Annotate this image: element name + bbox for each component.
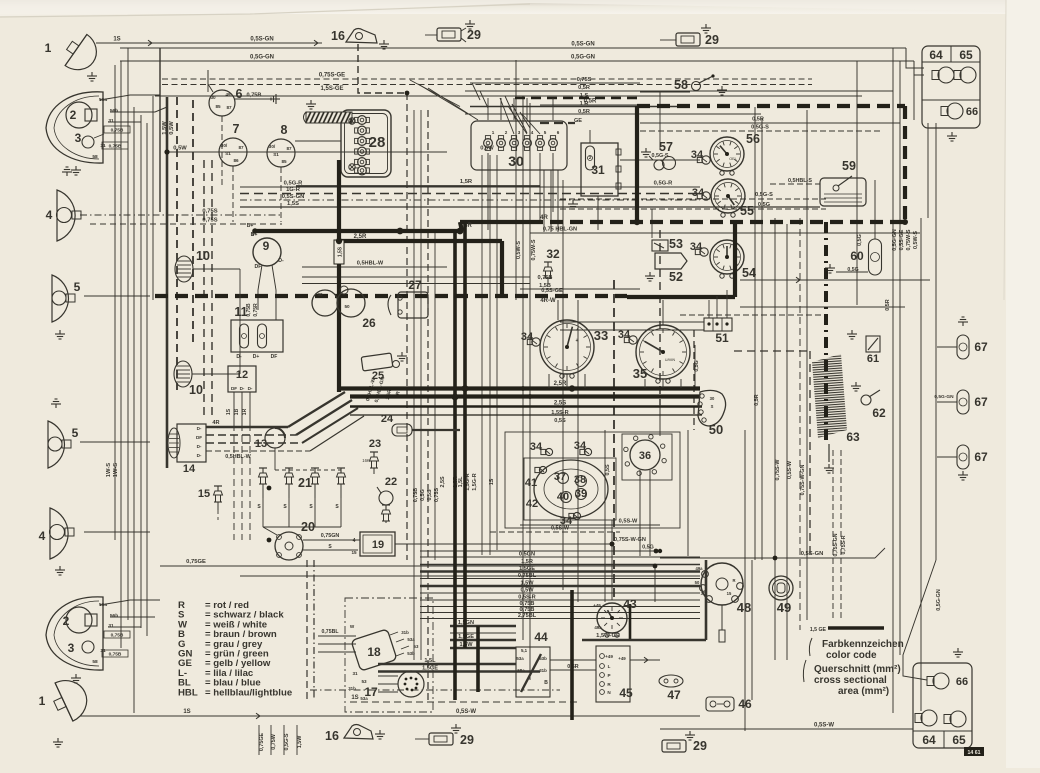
svg-text:0,75GE: 0,75GE (186, 559, 206, 565)
svg-text:12: 12 (236, 369, 248, 381)
svg-text:0,75B: 0,75B (111, 633, 124, 639)
svg-text:2: 2 (589, 155, 592, 160)
svg-text:87: 87 (286, 146, 292, 151)
svg-text:10: 10 (189, 383, 203, 397)
svg-text:35: 35 (633, 366, 647, 381)
svg-text:54: 54 (742, 266, 756, 280)
svg-text:50: 50 (695, 580, 700, 585)
svg-text:1,5S: 1,5S (287, 201, 299, 207)
svg-text:0,5G-GN: 0,5G-GN (934, 394, 954, 400)
svg-text:0,75B: 0,75B (413, 488, 419, 502)
svg-text:+49: +49 (593, 603, 601, 608)
svg-text:29: 29 (705, 33, 719, 47)
svg-text:1B: 1B (234, 408, 240, 415)
svg-text:0,75S: 0,75S (577, 77, 592, 83)
svg-text:0,5G-GN: 0,5G-GN (936, 589, 942, 611)
svg-text:30: 30 (508, 153, 524, 169)
svg-text:0,5G-GN: 0,5G-GN (571, 55, 595, 61)
svg-text:0,75S-R: 0,75S-R (841, 535, 847, 554)
svg-text:87: 87 (238, 145, 244, 150)
svg-text:2: 2 (63, 614, 70, 628)
svg-text:0,5W: 0,5W (520, 588, 534, 594)
svg-text:0,5GN: 0,5GN (519, 552, 535, 558)
svg-text:1S: 1S (489, 478, 495, 485)
svg-text:1,5L: 1,5L (424, 658, 436, 664)
svg-text:53b: 53b (539, 656, 547, 661)
svg-text:29: 29 (467, 28, 481, 42)
svg-text:10: 10 (196, 249, 210, 263)
svg-text:0,5S-GN: 0,5S-GN (571, 42, 594, 48)
svg-text:0,75S: 0,75S (202, 209, 217, 215)
svg-text:53: 53 (669, 237, 683, 251)
svg-text:66: 66 (956, 676, 968, 688)
svg-text:40: 40 (557, 491, 569, 503)
svg-text:4R: 4R (212, 420, 219, 426)
svg-text:0,5R: 0,5R (885, 299, 891, 310)
svg-text:P: P (607, 673, 610, 678)
svg-text:0,75S: 0,75S (434, 488, 440, 502)
svg-text:56b: 56b (110, 613, 118, 619)
svg-text:2,75BL: 2,75BL (518, 613, 537, 619)
svg-text:0,75B: 0,75B (109, 652, 122, 658)
svg-text:0,75S-W-GN: 0,75S-W-GN (800, 465, 806, 496)
svg-text:D-: D- (240, 386, 245, 391)
svg-text:33: 33 (594, 328, 608, 343)
svg-text:1,5 GE: 1,5 GE (810, 627, 827, 633)
svg-text:60: 60 (850, 249, 864, 263)
svg-text:0,5S-W: 0,5S-W (787, 460, 793, 479)
svg-text:0,5W: 0,5W (173, 146, 187, 152)
svg-text:S1: S1 (225, 151, 231, 156)
svg-text:0,75W: 0,75W (271, 733, 277, 749)
svg-text:30: 30 (701, 591, 706, 596)
svg-text:cross sectional: cross sectional (814, 675, 887, 686)
svg-text:W: W (350, 624, 355, 629)
svg-text:U/MIN: U/MIN (665, 358, 676, 362)
svg-text:29: 29 (460, 733, 474, 747)
svg-text:8: 8 (281, 123, 288, 137)
svg-text:66: 66 (966, 106, 978, 118)
svg-text:4: 4 (46, 208, 53, 222)
svg-text:0,5HBL-S: 0,5HBL-S (788, 178, 812, 184)
svg-text:30: 30 (210, 95, 216, 100)
svg-text:64: 64 (922, 733, 936, 747)
svg-text:0,5S-GN: 0,5S-GN (282, 194, 305, 200)
svg-text:color code: color code (826, 650, 877, 661)
svg-text:6: 6 (557, 130, 560, 135)
svg-text:OEL: OEL (729, 157, 737, 161)
svg-text:36: 36 (639, 450, 651, 462)
svg-text:1,5G-R: 1,5G-R (472, 473, 478, 490)
svg-text:67: 67 (974, 395, 988, 409)
svg-text:1S: 1S (183, 709, 190, 715)
svg-text:S: S (711, 404, 714, 409)
svg-text:0,75GE: 0,75GE (259, 732, 265, 751)
svg-text:0,5G: 0,5G (758, 202, 770, 208)
svg-text:34: 34 (692, 187, 705, 199)
svg-text:34: 34 (530, 441, 543, 453)
svg-text:5: 5 (544, 130, 547, 135)
svg-text:0,75B: 0,75B (246, 303, 252, 317)
svg-text:7: 7 (233, 122, 240, 136)
svg-text:0,5R: 0,5R (752, 117, 764, 123)
svg-text:GE: GE (574, 118, 582, 124)
svg-text:0,5G-S: 0,5G-S (751, 125, 769, 131)
svg-text:1,5S: 1,5S (338, 246, 344, 257)
svg-text:56a: 56a (99, 97, 107, 103)
svg-text:S1: S1 (273, 152, 279, 157)
svg-text:0,5S: 0,5S (554, 418, 566, 424)
svg-text:DF: DF (255, 264, 262, 270)
svg-text:31: 31 (100, 143, 106, 149)
svg-text:31: 31 (591, 163, 605, 177)
svg-text:56: 56 (746, 132, 760, 146)
svg-text:1,5GE: 1,5GE (422, 666, 438, 672)
svg-text:0,5R: 0,5R (754, 394, 760, 405)
svg-text:0,5G-S: 0,5G-S (284, 733, 290, 750)
svg-text:34: 34 (618, 329, 631, 341)
svg-text:0,5HBL-W: 0,5HBL-W (357, 261, 384, 267)
svg-text:0,5G-R: 0,5G-R (654, 181, 673, 187)
svg-text:0,5W: 0,5W (169, 121, 175, 135)
svg-text:0,75S-GN: 0,75S-GN (833, 533, 839, 556)
svg-text:0,5S-R: 0,5S-R (518, 595, 535, 601)
svg-text:3: 3 (68, 641, 75, 655)
svg-text:32: 32 (546, 247, 560, 261)
svg-text:2,5S: 2,5S (440, 476, 446, 487)
svg-text:1,5L: 1,5L (458, 476, 464, 487)
svg-text:0,5S-W: 0,5S-W (814, 723, 834, 729)
svg-text:0,5G: 0,5G (694, 360, 700, 371)
svg-text:D-: D- (236, 354, 242, 360)
svg-text:59: 59 (842, 159, 856, 173)
svg-text:0,75 HBL-GN: 0,75 HBL-GN (543, 227, 577, 233)
svg-text:0,75B: 0,75B (111, 128, 124, 134)
svg-text:26: 26 (362, 316, 376, 330)
svg-text:2,5R: 2,5R (554, 381, 567, 387)
svg-text:2: 2 (70, 108, 77, 122)
svg-text:9: 9 (263, 239, 270, 253)
svg-text:53a: 53a (516, 656, 524, 661)
svg-text:49a: 49a (594, 625, 602, 630)
svg-text:31b: 31b (348, 686, 356, 691)
svg-text:4: 4 (531, 130, 534, 135)
svg-text:1S: 1S (226, 408, 232, 415)
svg-text:D+: D+ (253, 354, 260, 360)
svg-text:34: 34 (691, 149, 704, 161)
svg-text:50: 50 (344, 304, 350, 309)
svg-text:13: 13 (255, 438, 267, 450)
svg-text:R: R (732, 578, 735, 583)
svg-text:58: 58 (92, 659, 98, 665)
svg-text:B: B (544, 680, 548, 686)
svg-text:30/: 30/ (269, 144, 276, 149)
svg-text:14 61: 14 61 (968, 750, 981, 756)
svg-text:51: 51 (715, 331, 729, 345)
svg-text:1R: 1R (242, 408, 248, 415)
svg-text:27: 27 (408, 278, 422, 292)
svg-text:86: 86 (233, 158, 239, 163)
svg-text:3: 3 (75, 131, 82, 145)
svg-text:41: 41 (525, 477, 537, 489)
svg-text:58: 58 (92, 154, 98, 160)
svg-text:0,5S: 0,5S (427, 489, 433, 500)
svg-text:1S: 1S (351, 695, 358, 701)
svg-text:4R-W: 4R-W (540, 298, 556, 304)
svg-text:1,5GE: 1,5GE (519, 566, 535, 572)
svg-text:34: 34 (560, 515, 573, 527)
svg-text:DF: DF (196, 435, 202, 440)
svg-text:1W-S: 1W-S (106, 463, 112, 478)
svg-text:1G-R: 1G-R (286, 187, 301, 193)
svg-text:43: 43 (623, 597, 637, 611)
svg-text:48: 48 (737, 600, 751, 615)
svg-text:3: 3 (518, 130, 521, 135)
svg-text:38: 38 (574, 474, 586, 486)
svg-text:1W-S: 1W-S (113, 463, 119, 478)
svg-text:53: 53 (361, 679, 367, 684)
svg-text:DF: DF (271, 354, 278, 360)
svg-text:0,75W-S: 0,75W-S (906, 229, 912, 250)
svg-text:62: 62 (872, 406, 886, 420)
svg-text:57: 57 (659, 140, 673, 154)
svg-text:87: 87 (226, 105, 232, 110)
svg-text:1,5W-GE: 1,5W-GE (596, 633, 620, 639)
svg-text:4: 4 (353, 538, 356, 544)
svg-text:0,75B: 0,75B (247, 93, 262, 99)
svg-text:14: 14 (183, 463, 196, 475)
svg-text:0,75R: 0,75R (253, 303, 259, 317)
svg-text:34: 34 (574, 440, 587, 452)
svg-text:42: 42 (526, 498, 538, 510)
svg-text:31: 31 (352, 671, 358, 676)
svg-text:56b: 56b (110, 108, 118, 114)
svg-text:0,5G: 0,5G (857, 234, 863, 246)
svg-text:53: 53 (414, 644, 419, 649)
svg-text:0,75S: 0,75S (202, 218, 217, 224)
svg-text:0,75S-W-GN: 0,75S-W-GN (614, 537, 646, 543)
svg-text:D-: D- (197, 426, 202, 431)
svg-text:1,5W: 1,5W (520, 581, 534, 587)
svg-text:1S: 1S (113, 37, 120, 43)
svg-text:4: 4 (39, 529, 46, 543)
svg-text:0,5W-S: 0,5W-S (516, 241, 522, 259)
svg-text:16: 16 (331, 29, 345, 43)
svg-text:0,5HBL-W: 0,5HBL-W (225, 454, 251, 460)
svg-text:Farbkennzeichen: Farbkennzeichen (822, 639, 904, 650)
svg-text:16: 16 (325, 729, 339, 743)
svg-text:31: 31 (100, 648, 106, 654)
svg-text:61: 61 (867, 353, 879, 365)
svg-text:0,75B: 0,75B (109, 144, 122, 150)
svg-text:0,5S-GN: 0,5S-GN (801, 551, 824, 557)
svg-text:52: 52 (669, 270, 683, 284)
svg-text:15: 15 (727, 591, 732, 596)
svg-text:55: 55 (740, 204, 754, 218)
svg-text:50: 50 (709, 422, 723, 437)
svg-text:31: 31 (108, 118, 114, 124)
svg-text:19: 19 (372, 539, 384, 551)
svg-text:58: 58 (674, 78, 688, 92)
svg-text:B+: B+ (247, 223, 254, 229)
svg-text:53a: 53a (360, 696, 368, 701)
svg-text:1,5R: 1,5R (460, 179, 473, 185)
svg-text:0,5S-GE: 0,5S-GE (899, 229, 905, 250)
svg-text:18: 18 (367, 645, 381, 659)
svg-text:5,1: 5,1 (521, 648, 528, 653)
svg-text:D-: D- (197, 444, 202, 449)
svg-text:39: 39 (575, 488, 587, 500)
svg-text:0,5S-W: 0,5S-W (619, 519, 638, 525)
svg-text:22: 22 (385, 476, 397, 488)
svg-text:23: 23 (369, 438, 381, 450)
svg-text:1,5R: 1,5R (521, 559, 533, 565)
svg-text:= hellblau/lightblue: = hellblau/lightblue (205, 687, 292, 698)
svg-text:29: 29 (693, 739, 707, 753)
svg-text:24: 24 (381, 413, 394, 425)
svg-text:31b: 31b (539, 668, 547, 673)
svg-text:46: 46 (738, 697, 752, 711)
svg-text:0,5R: 0,5R (578, 85, 590, 91)
svg-text:34: 34 (690, 241, 703, 253)
svg-text:65: 65 (959, 48, 973, 62)
svg-text:34: 34 (521, 331, 534, 343)
svg-text:67: 67 (974, 340, 988, 354)
svg-text:0,5S: 0,5S (605, 464, 611, 475)
svg-text:49: 49 (777, 600, 791, 615)
svg-text:45: 45 (619, 686, 633, 700)
svg-text:30: 30 (710, 396, 715, 401)
svg-text:0,75W-S: 0,75W-S (531, 239, 537, 260)
svg-text:58a: 58a (517, 668, 525, 673)
svg-text:0,5S-GE: 0,5S-GE (541, 288, 563, 294)
svg-text:0,5S-GN: 0,5S-GN (250, 37, 273, 43)
svg-text:31: 31 (108, 623, 114, 629)
svg-text:5: 5 (72, 426, 79, 440)
svg-text:2,5R: 2,5R (354, 234, 367, 240)
svg-text:25: 25 (372, 370, 384, 382)
svg-text:15: 15 (351, 550, 357, 555)
svg-text:1,5W: 1,5W (297, 735, 303, 748)
svg-text:49: 49 (225, 92, 231, 97)
svg-text:21: 21 (298, 476, 312, 490)
svg-text:0,5G-GN: 0,5G-GN (250, 55, 274, 61)
svg-text:15: 15 (198, 488, 210, 500)
svg-text:1: 1 (45, 41, 52, 55)
svg-text:0,75BL: 0,75BL (321, 629, 339, 635)
svg-text:53a: 53a (407, 637, 415, 642)
svg-text:DF: DF (231, 386, 237, 391)
svg-text:+49: +49 (618, 656, 626, 661)
svg-text:44: 44 (534, 630, 548, 644)
svg-text:47: 47 (667, 688, 681, 702)
svg-text:+49: +49 (605, 654, 613, 659)
svg-text:2: 2 (505, 130, 508, 135)
svg-text:0,5G-GN: 0,5G-GN (892, 229, 898, 251)
svg-text:63: 63 (846, 430, 860, 444)
svg-text:67: 67 (974, 450, 988, 464)
svg-text:85: 85 (215, 104, 221, 109)
svg-text:1: 1 (492, 130, 495, 135)
svg-text:28: 28 (369, 134, 386, 151)
svg-text:D-: D- (197, 453, 202, 458)
svg-text:0,75S-W: 0,75S-W (775, 459, 781, 481)
svg-text:20: 20 (301, 520, 315, 534)
svg-text:Querschnitt (mm²): Querschnitt (mm²) (814, 664, 901, 675)
svg-text:30: 30 (317, 292, 323, 297)
svg-text:0,5G: 0,5G (420, 489, 426, 501)
svg-text:0,5S-W: 0,5S-W (456, 709, 476, 715)
svg-text:37: 37 (554, 471, 566, 483)
svg-text:0,75S-GE: 0,75S-GE (319, 73, 345, 79)
svg-text:64: 64 (929, 48, 943, 62)
svg-text:53b: 53b (407, 651, 415, 656)
svg-text:D-: D- (248, 386, 253, 391)
svg-text:0,75GN: 0,75GN (321, 533, 340, 539)
svg-text:+: + (576, 338, 579, 344)
svg-text:0,5G: 0,5G (642, 545, 654, 551)
svg-text:49a: 49a (696, 566, 704, 571)
svg-text:0,5G-S: 0,5G-S (755, 192, 773, 198)
svg-text:31b: 31b (401, 630, 409, 635)
svg-text:L: L (608, 664, 611, 669)
svg-text:1: 1 (39, 694, 46, 708)
svg-text:D-: D- (278, 258, 284, 264)
svg-text:85: 85 (281, 159, 287, 164)
svg-text:area (mm²): area (mm²) (838, 686, 889, 697)
svg-text:65: 65 (952, 733, 966, 747)
svg-text:16K: 16K (362, 458, 370, 463)
svg-text:1,5S-GE: 1,5S-GE (320, 86, 343, 92)
svg-text:5: 5 (74, 280, 81, 294)
svg-text:HBL: HBL (178, 687, 198, 698)
